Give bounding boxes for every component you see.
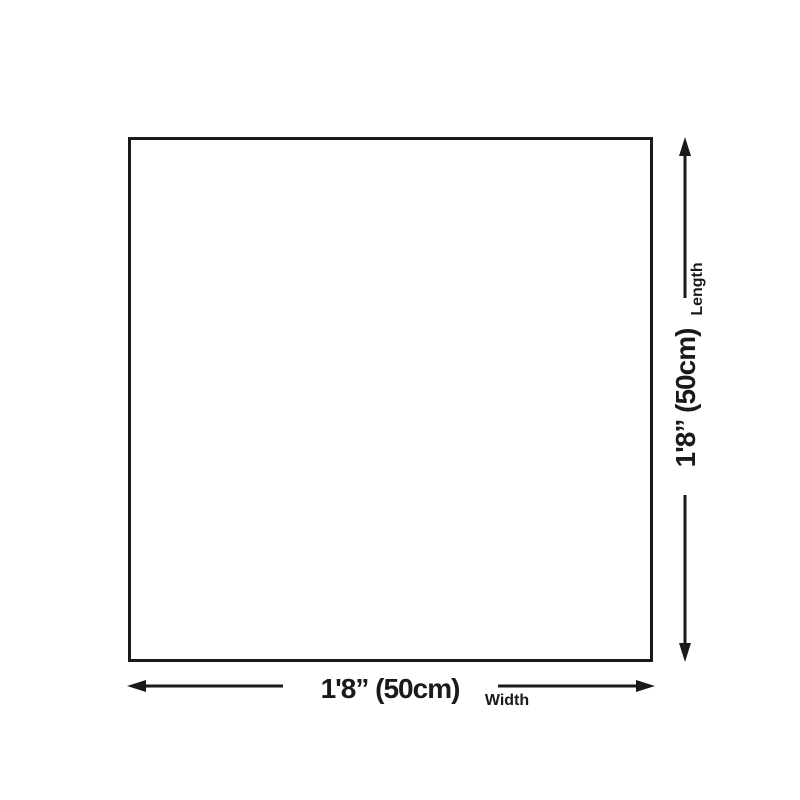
length-dimension-value: 1'8” (50cm) xyxy=(670,329,702,468)
width-dimension-value: 1'8” (50cm) xyxy=(321,673,460,705)
arrow-down-icon xyxy=(679,495,691,662)
arrow-left-icon xyxy=(127,680,283,692)
length-dimension-label: Length xyxy=(689,262,707,315)
arrow-right-icon xyxy=(498,680,655,692)
width-dimension-label: Width xyxy=(485,692,529,710)
product-outline xyxy=(128,137,653,662)
dimension-diagram: 1'8” (50cm) Width 1'8” (50cm) Length xyxy=(0,0,800,800)
